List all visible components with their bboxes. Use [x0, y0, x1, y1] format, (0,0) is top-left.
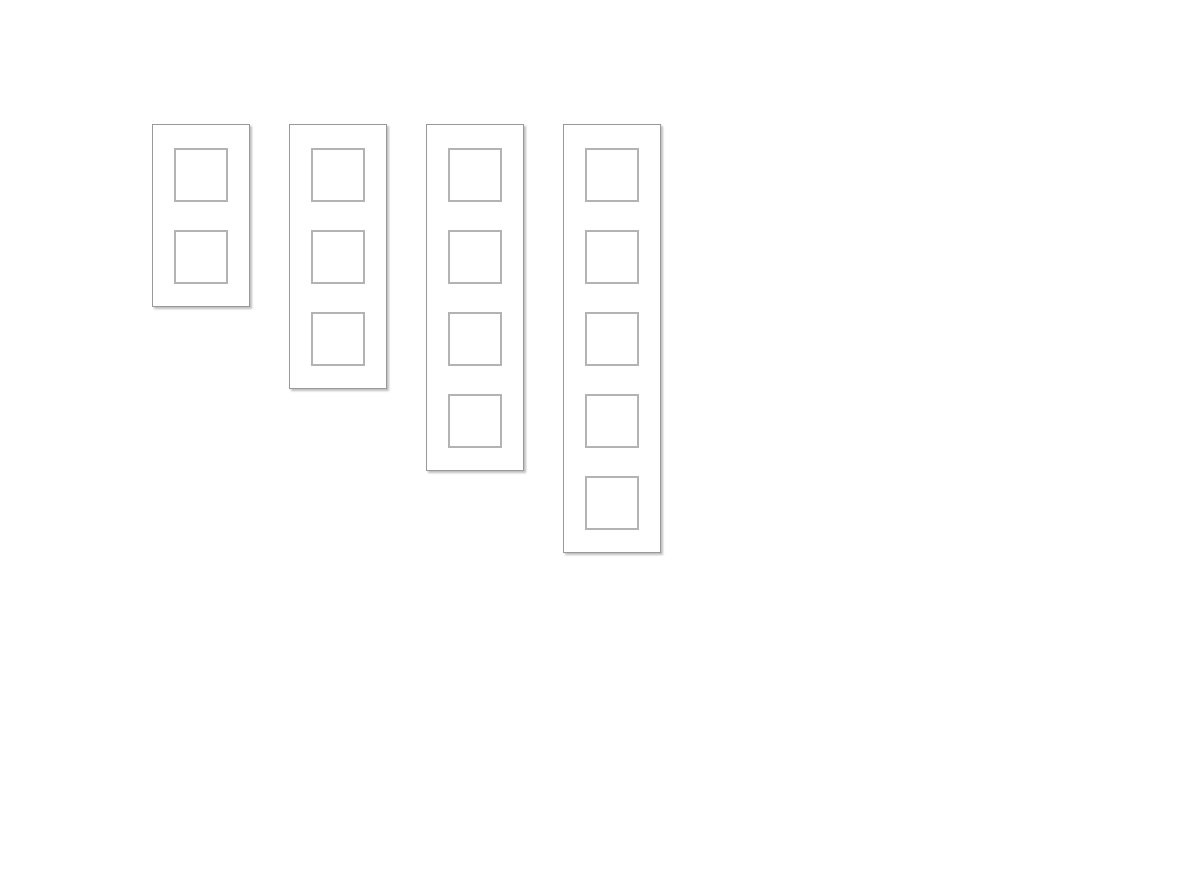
card-slot	[585, 312, 639, 366]
card-slot	[448, 394, 502, 448]
card-slot	[448, 230, 502, 284]
card-slot	[311, 148, 365, 202]
card-panel-2-slots[interactable]	[152, 124, 250, 307]
card-slot	[448, 148, 502, 202]
card-slot	[585, 476, 639, 530]
card-slot	[585, 394, 639, 448]
page-background	[0, 0, 1199, 884]
card-slot	[311, 312, 365, 366]
card-slot	[311, 230, 365, 284]
card-slot	[585, 148, 639, 202]
card-slot	[174, 148, 228, 202]
card-panel-5-slots[interactable]	[563, 124, 661, 553]
card-panel-3-slots[interactable]	[289, 124, 387, 389]
card-panel-4-slots[interactable]	[426, 124, 524, 471]
card-slot	[448, 312, 502, 366]
card-slot	[174, 230, 228, 284]
card-board	[152, 124, 661, 553]
card-slot	[585, 230, 639, 284]
